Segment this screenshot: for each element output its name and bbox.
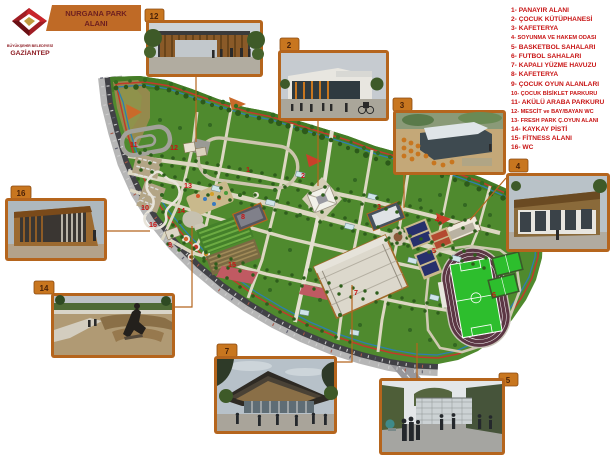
svg-text:13- FRESH PARK Ç.OYUN ALANI: 13- FRESH PARK Ç.OYUN ALANI	[511, 118, 599, 124]
svg-text:BÜYÜKŞEHİR BELEDİYESİ: BÜYÜKŞEHİR BELEDİYESİ	[7, 43, 53, 48]
svg-text:1: 1	[246, 165, 250, 174]
svg-text:3- KAFETERYA: 3- KAFETERYA	[511, 25, 558, 32]
svg-text:10: 10	[141, 203, 149, 212]
svg-text:14: 14	[177, 206, 185, 215]
svg-text:4- SOYUNMA VE HAKEM ODASI: 4- SOYUNMA VE HAKEM ODASI	[511, 35, 597, 41]
svg-text:4: 4	[516, 162, 521, 171]
svg-text:5: 5	[432, 246, 436, 255]
svg-text:4: 4	[435, 215, 439, 224]
svg-text:7- KAPALI YÜZME HAVUZU: 7- KAPALI YÜZME HAVUZU	[511, 60, 597, 69]
svg-text:6: 6	[492, 290, 496, 299]
svg-text:14: 14	[40, 284, 49, 293]
svg-text:16: 16	[149, 220, 157, 229]
svg-text:11- AKÜLÜ ARABA PARKURU: 11- AKÜLÜ ARABA PARKURU	[511, 97, 605, 106]
svg-text:11: 11	[130, 140, 138, 149]
svg-text:15: 15	[228, 260, 236, 269]
svg-text:16: 16	[17, 189, 26, 198]
svg-text:12- MESCİT ve BAY/BAYAN WC: 12- MESCİT ve BAY/BAYAN WC	[511, 108, 594, 115]
svg-text:3: 3	[400, 101, 405, 110]
svg-text:12: 12	[150, 12, 159, 21]
svg-text:5- BASKETBOL SAHALARI: 5- BASKETBOL SAHALARI	[511, 44, 596, 51]
svg-text:6- FUTBOL SAHALARI: 6- FUTBOL SAHALARI	[511, 53, 581, 60]
svg-text:10- ÇOCUK BİSİKLET PARKURU: 10- ÇOCUK BİSİKLET PARKURU	[511, 90, 597, 97]
svg-text:9: 9	[168, 240, 172, 249]
svg-text:GAZİANTEP: GAZİANTEP	[10, 49, 50, 57]
svg-text:2: 2	[287, 41, 292, 50]
svg-text:14- KAYKAY PİSTİ: 14- KAYKAY PİSTİ	[511, 125, 567, 133]
svg-text:13: 13	[184, 181, 192, 190]
svg-text:7: 7	[225, 347, 230, 356]
svg-text:5: 5	[506, 376, 511, 385]
svg-text:ALANI: ALANI	[84, 19, 107, 28]
svg-text:8: 8	[241, 212, 245, 221]
svg-text:7: 7	[354, 288, 358, 297]
svg-text:16- WC: 16- WC	[511, 144, 534, 151]
svg-text:3: 3	[377, 202, 381, 211]
svg-text:2: 2	[301, 171, 305, 180]
svg-text:1- PANAYIR ALANI: 1- PANAYIR ALANI	[511, 7, 569, 14]
svg-text:NURGANA PARK: NURGANA PARK	[65, 9, 127, 18]
svg-text:12: 12	[170, 143, 178, 152]
svg-text:2- ÇOCUK KÜTÜPHANESİ: 2- ÇOCUK KÜTÜPHANESİ	[511, 14, 592, 23]
svg-text:15- FİTNESS ALANI: 15- FİTNESS ALANI	[511, 134, 572, 142]
svg-text:8- KAFETERYA: 8- KAFETERYA	[511, 71, 558, 78]
svg-text:9- ÇOCUK OYUN ALANLARI: 9- ÇOCUK OYUN ALANLARI	[511, 81, 599, 88]
